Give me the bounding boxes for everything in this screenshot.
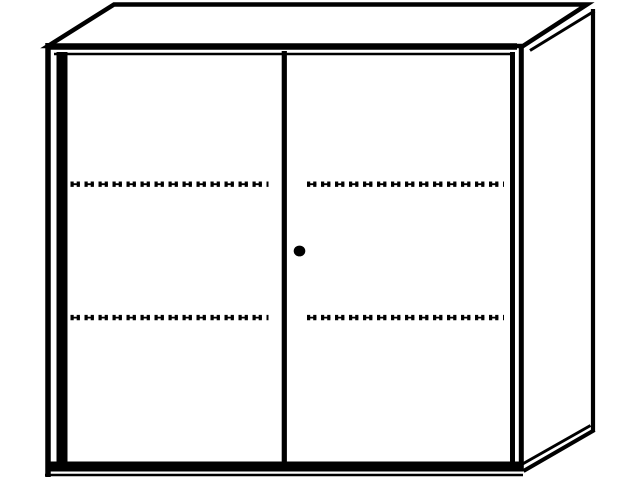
side-panel-bottom-outer-edge bbox=[524, 430, 595, 471]
cabinet-drawing-canvas bbox=[0, 0, 640, 480]
cabinet bbox=[45, 5, 595, 478]
lock-keyhole-icon bbox=[294, 246, 306, 257]
side-panel-bottom-inner-edge bbox=[519, 426, 591, 467]
cabinet-illustration bbox=[0, 0, 640, 480]
cabinet-top-panel bbox=[48, 5, 587, 47]
